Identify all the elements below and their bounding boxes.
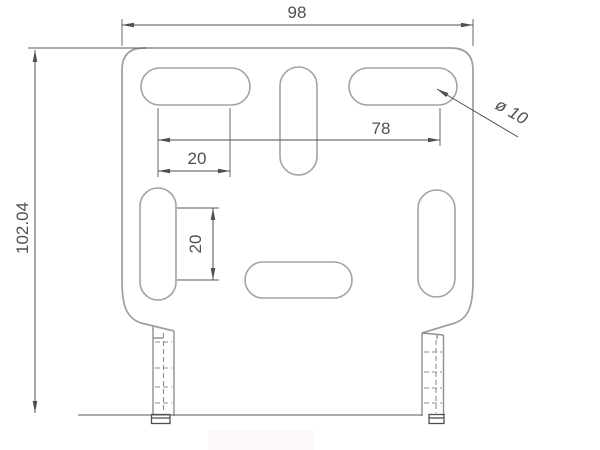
right-leg xyxy=(422,333,444,424)
dimension-label-hole-diameter: ø 10 xyxy=(492,95,531,129)
slot-group xyxy=(140,67,457,300)
left-leg-foot xyxy=(152,415,171,424)
dimension-slot-pitch-side: 20 xyxy=(177,208,219,280)
dimension-label-pitch-side: 20 xyxy=(186,235,205,254)
slot-top-left xyxy=(141,68,250,105)
technical-drawing-canvas: 98 102.04 78 20 20 ø 10 xyxy=(0,0,600,450)
leader-hole-diameter: ø 10 xyxy=(437,89,531,137)
watermark-tint xyxy=(208,430,313,450)
dimension-label-height: 102.04 xyxy=(13,202,32,254)
slot-middle-left xyxy=(140,188,176,300)
slot-top-right xyxy=(349,68,457,105)
left-leg xyxy=(152,327,175,424)
slot-bottom-center xyxy=(245,262,352,298)
right-leg-foot xyxy=(429,415,444,424)
dimension-slot-pitch-top: 20 xyxy=(158,108,230,177)
dimension-label-width: 98 xyxy=(288,3,307,22)
slot-middle-right xyxy=(418,190,455,297)
dimension-label-pitch-top: 20 xyxy=(188,149,207,168)
dimension-overall-width: 98 xyxy=(122,3,473,46)
dimension-label-slot-span: 78 xyxy=(372,119,391,138)
slot-top-middle xyxy=(280,67,317,175)
